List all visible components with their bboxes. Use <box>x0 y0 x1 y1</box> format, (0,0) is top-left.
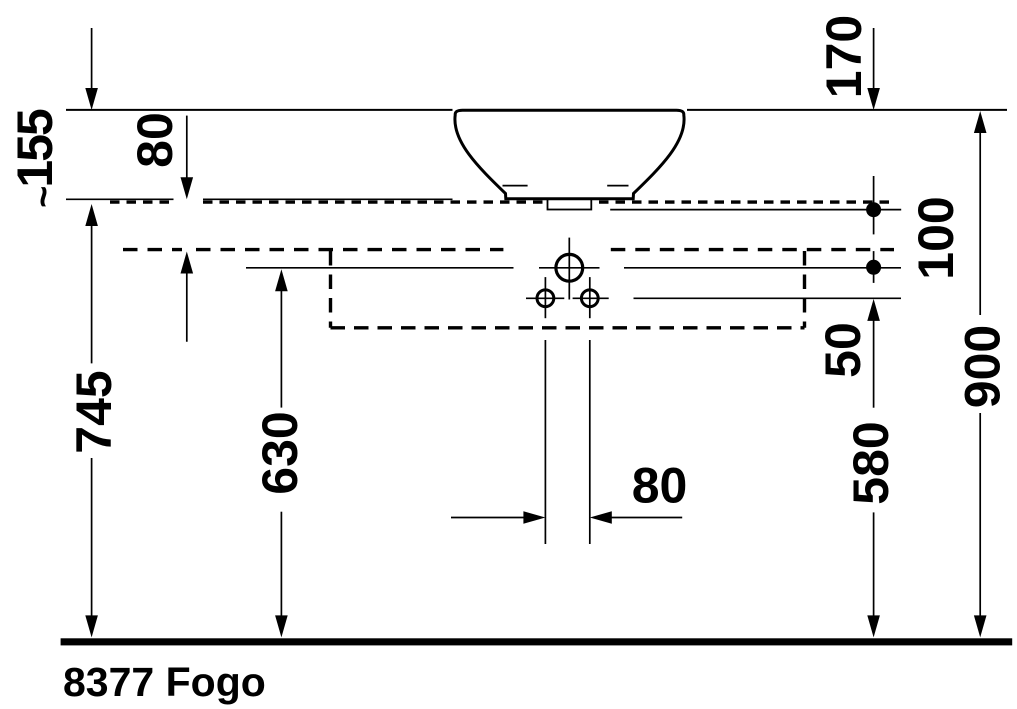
svg-text:170: 170 <box>816 15 872 98</box>
svg-text:630: 630 <box>252 411 308 494</box>
svg-text:580: 580 <box>843 421 899 504</box>
svg-text:80: 80 <box>632 458 688 514</box>
svg-text:80: 80 <box>127 112 183 168</box>
svg-text:50: 50 <box>815 322 871 378</box>
svg-text:100: 100 <box>908 196 964 279</box>
svg-text:~155: ~155 <box>7 109 65 208</box>
svg-text:745: 745 <box>66 370 122 453</box>
svg-text:900: 900 <box>955 325 1011 408</box>
svg-text:8377 Fogo: 8377 Fogo <box>63 659 266 705</box>
